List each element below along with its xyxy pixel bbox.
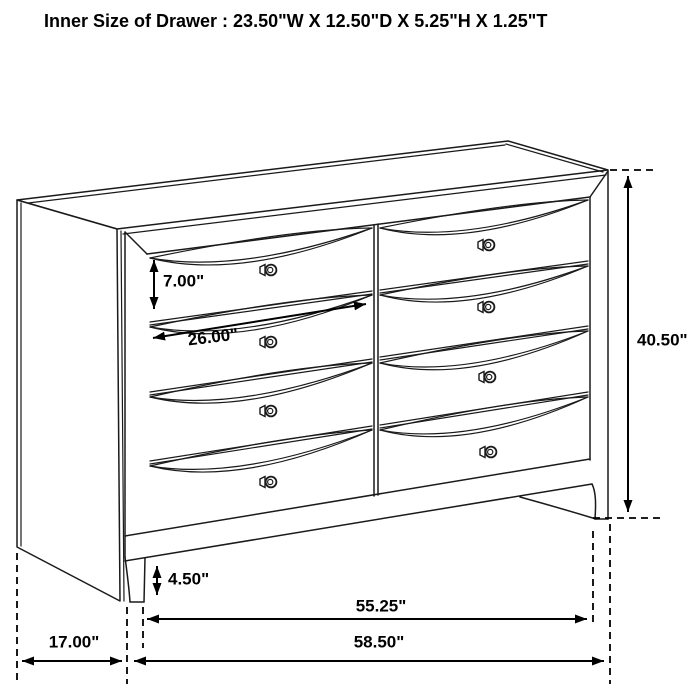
dimension-label-base-width: 55.25": [356, 598, 407, 615]
dresser-diagram: [0, 0, 700, 700]
drawer-separators-left: [150, 291, 372, 464]
drawer-knob: [260, 406, 276, 417]
drawer-knob: [260, 265, 276, 276]
dimension-label-drawer-height: 7.00": [163, 273, 204, 290]
dimension-label-overall-width: 58.50": [354, 634, 405, 651]
dimension-arrow-drawer-width: [153, 304, 366, 338]
dimension-label-overall-height: 40.50": [637, 332, 688, 349]
front-right-foot: [592, 484, 608, 519]
drawer-knob: [478, 240, 494, 251]
diagram-canvas: Inner Size of Drawer : 23.50"W X 12.50"D…: [0, 0, 700, 700]
drawer-knob: [480, 447, 496, 458]
drawer-knob: [260, 477, 276, 488]
drawer-knob: [478, 302, 494, 313]
drawer-knob: [260, 337, 276, 348]
dimension-label-foot-height: 4.50": [168, 571, 209, 588]
front-left-foot: [125, 557, 145, 602]
drawer-knob: [479, 372, 495, 383]
drawer-lenses-left: [150, 228, 372, 472]
side-panel: [17, 200, 124, 601]
dimension-label-depth: 17.00": [49, 634, 100, 651]
drawer-lenses-right: [380, 200, 588, 437]
